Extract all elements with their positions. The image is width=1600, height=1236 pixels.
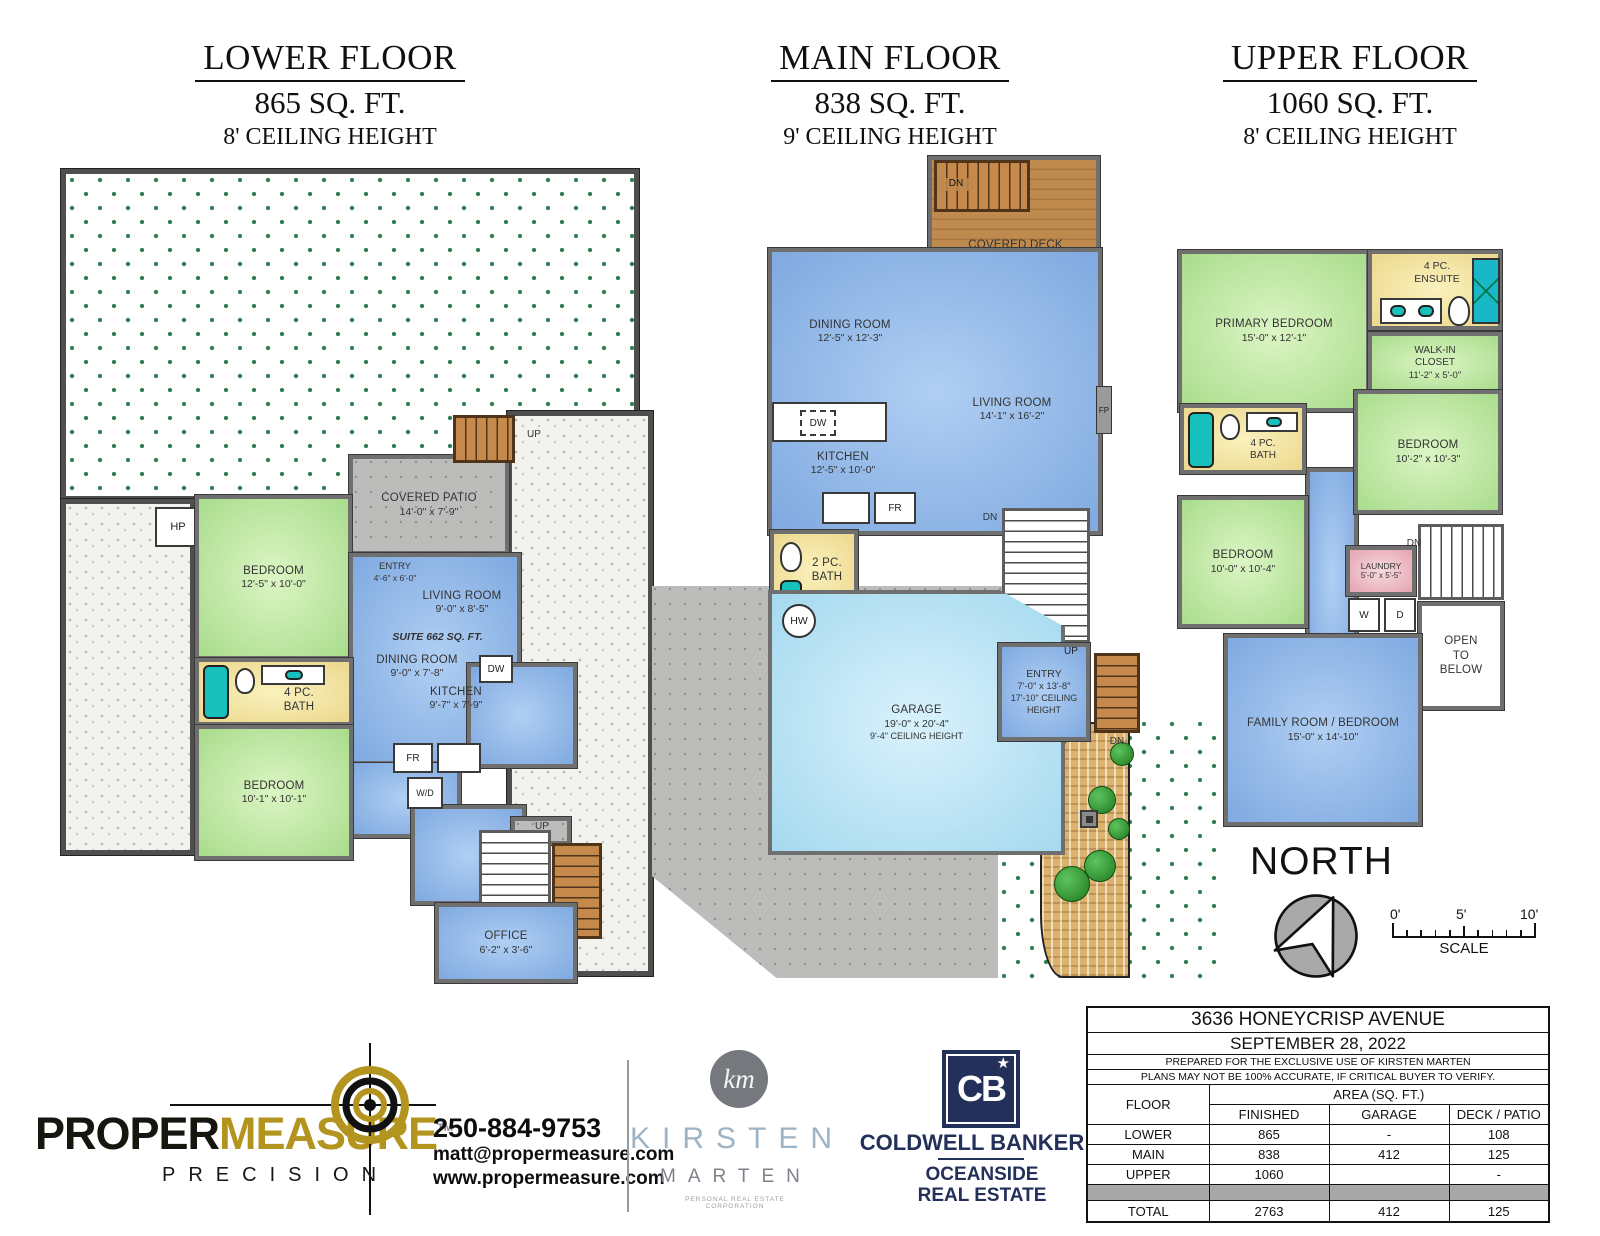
scale-5: 5'	[1456, 906, 1466, 922]
area-table: 3636 HONEYCRISP AVENUE SEPTEMBER 28, 202…	[1086, 1006, 1550, 1223]
vanity	[1246, 412, 1298, 432]
footer-divider	[627, 1060, 629, 1212]
cooktop	[437, 743, 481, 773]
dryer: D	[1384, 598, 1416, 632]
room-ensuite: 4 PC. ENSUITE	[1368, 250, 1502, 330]
pm-website: www.propermeasure.com	[433, 1168, 665, 1190]
table-address: 3636 HONEYCRISP AVENUE	[1087, 1007, 1549, 1033]
fireplace: FP	[1096, 386, 1112, 434]
scale-ruler	[1392, 922, 1536, 938]
lower-floor-name: LOWER FLOOR	[195, 38, 464, 82]
table-date: SEPTEMBER 28, 2022	[1087, 1033, 1549, 1055]
km-subtitle: PERSONAL REAL ESTATE CORPORATION	[655, 1196, 815, 1210]
room-bath-upper: 4 PC. BATH	[1180, 404, 1306, 474]
room-covered-patio: COVERED PATIO 14'-0" x 7'-9"	[349, 455, 509, 555]
lower-floor-plan: HP COVERED PATIO 14'-0" x 7'-9" UP BEDRO…	[55, 165, 655, 980]
km-first-name: KIRSTEN	[630, 1122, 844, 1156]
col-area: AREA (SQ. FT.)	[1209, 1085, 1549, 1105]
km-monogram: km	[710, 1050, 768, 1108]
upper-floor-area: 1060 SQ. FT.	[1150, 85, 1550, 121]
dishwasher: DW	[479, 655, 513, 683]
main-floor-name: MAIN FLOOR	[771, 38, 1009, 82]
north-arrow-icon	[1272, 892, 1360, 980]
room-walk-in-closet: WALK-IN CLOSET 11'-2" x 5'-0"	[1368, 332, 1502, 394]
dn-label: DN	[972, 512, 1008, 525]
cb-monogram-square: CB ★	[942, 1050, 1020, 1128]
bush	[1054, 866, 1090, 902]
up-label: UP	[1054, 646, 1088, 659]
room-primary-bedroom: PRIMARY BEDROOM 15'-0" x 12'-1"	[1178, 250, 1370, 412]
washer: W	[1348, 598, 1380, 632]
floor-plan-sheet: LOWER FLOOR 865 SQ. FT. 8' CEILING HEIGH…	[0, 0, 1600, 1236]
table-note-1: PREPARED FOR THE EXCLUSIVE USE OF KIRSTE…	[1087, 1055, 1549, 1070]
dining-room-label: DINING ROOM 12'-5" x 12'-3"	[790, 318, 910, 346]
bathtub	[203, 665, 229, 719]
table-row: UPPER 1060 -	[1087, 1165, 1549, 1185]
dn-label: DN	[938, 178, 974, 191]
room-bath-4pc: 4 PC. BATH	[195, 658, 353, 726]
lower-floor-ceiling: 8' CEILING HEIGHT	[130, 124, 530, 151]
toilet	[235, 668, 255, 694]
cb-sub1: OCEANSIDE	[902, 1164, 1062, 1186]
up-label: UP	[517, 429, 551, 442]
pm-target-icon	[170, 1043, 440, 1215]
kitchen-label: KITCHEN 9'-7" x 7'-9"	[400, 685, 512, 713]
col-floor: FLOOR	[1087, 1085, 1209, 1125]
washer-dryer: W/D	[407, 777, 443, 809]
room-bedroom-4: BEDROOM 10'-0" x 10'-4"	[1178, 496, 1308, 628]
col-garage: GARAGE	[1329, 1105, 1449, 1125]
dn-label: DN	[1396, 538, 1432, 551]
open-to-below: OPEN TO BELOW	[1418, 602, 1504, 710]
bush	[1108, 818, 1130, 840]
table-row: MAIN 838 412 125	[1087, 1145, 1549, 1165]
kitchen-label: KITCHEN 12'-5" x 10'-0"	[783, 450, 903, 478]
shower	[1472, 258, 1500, 324]
main-living-block	[768, 248, 1102, 535]
room-family-room: FAMILY ROOM / BEDROOM 15'-0" x 14'-10"	[1224, 634, 1422, 826]
stairs-up-exterior	[453, 415, 515, 463]
main-floor-title: MAIN FLOOR 838 SQ. FT. 9' CEILING HEIGHT	[690, 38, 1090, 151]
table-note-2: PLANS MAY NOT BE 100% ACCURATE, IF CRITI…	[1087, 1070, 1549, 1085]
living-room-label: LIVING ROOM 14'-1" x 16'-2"	[952, 396, 1072, 424]
cb-star-icon: ★	[997, 1054, 1010, 1072]
main-floor-ceiling: 9' CEILING HEIGHT	[690, 124, 1090, 151]
fridge: FR	[874, 492, 916, 524]
lower-floor-area: 865 SQ. FT.	[130, 85, 530, 121]
toilet	[1220, 414, 1240, 440]
upper-floor-ceiling: 8' CEILING HEIGHT	[1150, 124, 1550, 151]
vanity	[261, 665, 325, 685]
km-last-name: MARTEN	[660, 1166, 812, 1188]
col-finished: FINISHED	[1209, 1105, 1329, 1125]
room-laundry: LAUNDRY 5'-0" x 5'-5"	[1346, 546, 1416, 596]
main-floor-plan: DN COVERED DECK 14'-1" x 7'-10" DINING R…	[650, 150, 1215, 980]
stairs-down-upper	[1418, 524, 1504, 600]
cooktop	[822, 492, 870, 524]
cb-sub2: REAL ESTATE	[902, 1185, 1062, 1207]
dining-room-label: DINING ROOM 9'-0" x 7'-8"	[353, 653, 481, 681]
table-separator-row	[1087, 1185, 1549, 1201]
north-label: NORTH	[1250, 838, 1390, 887]
table-row: LOWER 865 - 108	[1087, 1125, 1549, 1145]
cb-rule	[938, 1158, 1024, 1160]
utility-box	[1080, 810, 1098, 828]
main-floor-area: 838 SQ. FT.	[690, 85, 1090, 121]
double-vanity	[1380, 298, 1442, 324]
scale-bar: 0' 5' 10' SCALE	[1392, 906, 1542, 957]
hot-water-tank: HW	[782, 604, 816, 638]
scale-0: 0'	[1390, 906, 1400, 922]
toilet	[780, 542, 802, 572]
upper-floor-name: UPPER FLOOR	[1223, 38, 1477, 82]
suite-area-note: SUITE 662 SQ. FT.	[355, 631, 520, 644]
fridge: FR	[393, 743, 433, 773]
room-bedroom-1: BEDROOM 12'-5" x 10'-0"	[195, 495, 352, 660]
lower-floor-title: LOWER FLOOR 865 SQ. FT. 8' CEILING HEIGH…	[130, 38, 530, 151]
table-total-row: TOTAL 2763 412 125	[1087, 1201, 1549, 1223]
dishwasher: DW	[800, 410, 836, 436]
pm-phone: 250-884-9753	[433, 1113, 601, 1144]
upper-floor-title: UPPER FLOOR 1060 SQ. FT. 8' CEILING HEIG…	[1150, 38, 1550, 151]
entry-label: ENTRY 4'-6" x 6'-0"	[353, 561, 437, 584]
room-bedroom-2: BEDROOM 10'-1" x 10'-1"	[195, 725, 353, 860]
room-office: OFFICE 6'-2" x 3'-6"	[435, 903, 577, 983]
scale-label: SCALE	[1392, 940, 1536, 957]
bathtub	[1188, 412, 1214, 468]
living-room-label: LIVING ROOM 9'-0" x 8'-5"	[403, 589, 521, 617]
col-deck: DECK / PATIO	[1449, 1105, 1549, 1125]
dn-label: DN	[1092, 736, 1142, 749]
cb-name: COLDWELL BANKER	[852, 1130, 1092, 1156]
gravel-area-left	[61, 499, 195, 855]
room-label: COVERED PATIO	[381, 491, 476, 505]
room-bedroom-3: BEDROOM 10'-2" x 10'-3"	[1354, 390, 1502, 514]
upper-floor-plan: PRIMARY BEDROOM 15'-0" x 12'-1" 4 PC. EN…	[1170, 240, 1515, 845]
scale-10: 10'	[1520, 906, 1538, 922]
entry-stairs-exterior	[1094, 653, 1140, 733]
toilet	[1448, 296, 1470, 326]
